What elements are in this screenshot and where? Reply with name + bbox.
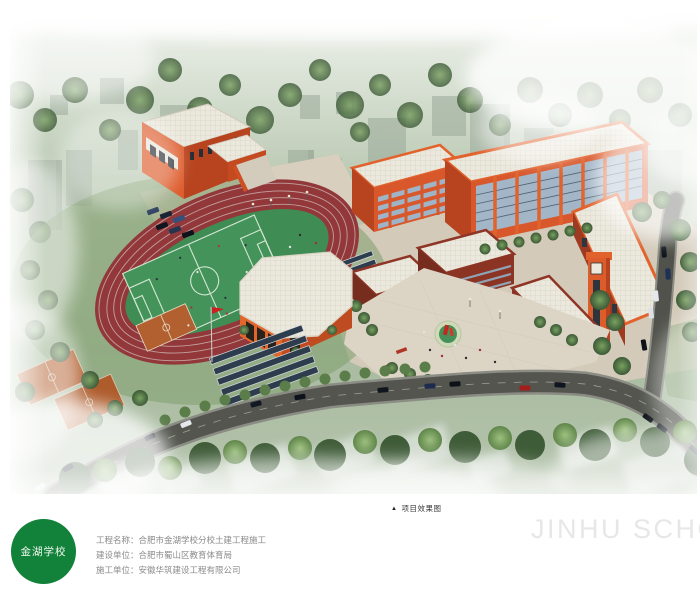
- contractor-value: 安徽华筑建设工程有限公司: [139, 565, 241, 575]
- owner-row: 建设单位：合肥市蜀山区教育体育局: [96, 548, 266, 563]
- school-logo-badge: 金湖学校: [11, 519, 76, 584]
- project-name-row: 工程名称：合肥市金湖学校分校土建工程施工: [96, 533, 266, 548]
- project-info: 工程名称：合肥市金湖学校分校土建工程施工 建设单位：合肥市蜀山区教育体育局 施工…: [96, 533, 266, 579]
- campus-rendering: [10, 13, 697, 494]
- project-rendering-image: [10, 13, 697, 494]
- image-caption: ▲ 项目效果图: [391, 503, 441, 514]
- caption-text: 项目效果图: [401, 503, 441, 514]
- brochure-page: ▲ 项目效果图 金湖学校 工程名称：合肥市金湖学校分校土建工程施工 建设单位：合…: [0, 0, 700, 597]
- contractor-label: 施工单位：: [96, 565, 139, 575]
- school-logo-text: 金湖学校: [21, 544, 67, 559]
- project-name-value: 合肥市金湖学校分校土建工程施工: [139, 535, 267, 545]
- clock-face: [591, 263, 602, 274]
- caption-marker-icon: ▲: [391, 506, 397, 512]
- owner-value: 合肥市蜀山区教育体育局: [139, 550, 233, 560]
- project-name-label: 工程名称：: [96, 535, 139, 545]
- watermark-text: JINHU SCHOOL: [531, 514, 700, 545]
- contractor-row: 施工单位：安徽华筑建设工程有限公司: [96, 563, 266, 578]
- owner-label: 建设单位：: [96, 550, 139, 560]
